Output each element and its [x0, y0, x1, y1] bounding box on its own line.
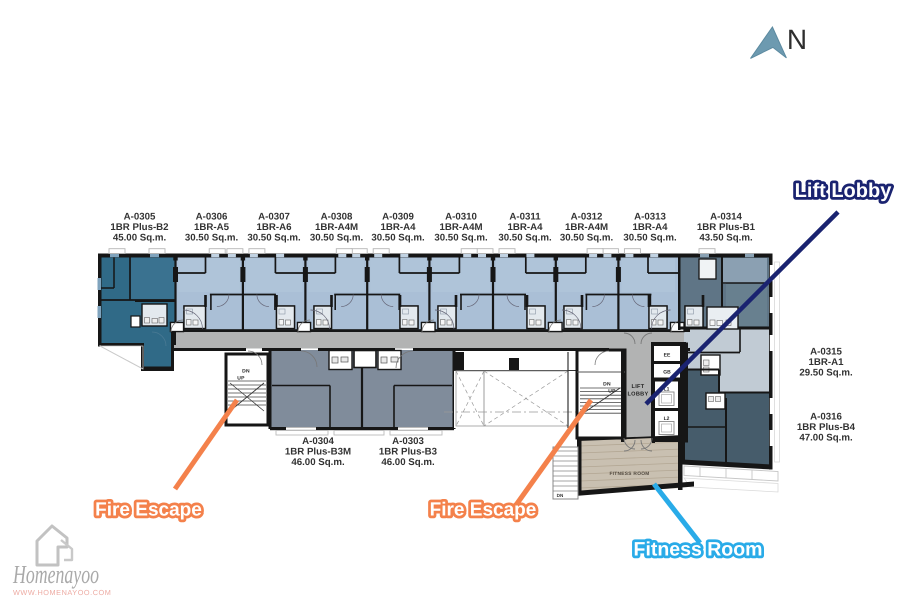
svg-text:UP: UP [237, 376, 245, 382]
svg-text:N: N [787, 24, 807, 55]
svg-text:Fire Escape: Fire Escape [430, 500, 537, 521]
svg-text:LIFT: LIFT [631, 384, 644, 390]
svg-text:WWW.HOMENAYOO.COM: WWW.HOMENAYOO.COM [13, 588, 111, 597]
svg-text:A-03161BR Plus-B447.00 Sq.m.: A-03161BR Plus-B447.00 Sq.m. [797, 412, 856, 444]
svg-text:Fitness Room: Fitness Room [634, 539, 763, 561]
svg-text:A-03111BR-A430.50 Sq.m.: A-03111BR-A430.50 Sq.m. [498, 212, 552, 244]
svg-text:L2: L2 [664, 416, 670, 422]
svg-text:A-03151BR-A129.50 Sq.m.: A-03151BR-A129.50 Sq.m. [799, 347, 853, 379]
svg-text:DN: DN [242, 369, 250, 375]
svg-text:A-03081BR-A4M30.50 Sq.m.: A-03081BR-A4M30.50 Sq.m. [310, 212, 364, 244]
svg-text:A-03061BR-A530.50 Sq.m.: A-03061BR-A530.50 Sq.m. [185, 212, 239, 244]
svg-text:A-03071BR-A630.50 Sq.m.: A-03071BR-A630.50 Sq.m. [247, 212, 301, 244]
svg-text:A-03091BR-A430.50 Sq.m.: A-03091BR-A430.50 Sq.m. [371, 212, 425, 244]
svg-text:UP: UP [608, 389, 616, 395]
svg-text:Homenayoo: Homenayoo [12, 560, 99, 589]
svg-text:A-03121BR-A4M30.50 Sq.m.: A-03121BR-A4M30.50 Sq.m. [560, 212, 614, 244]
svg-text:A-03051BR Plus-B245.00 Sq.m.: A-03051BR Plus-B245.00 Sq.m. [110, 212, 168, 244]
svg-text:A-03131BR-A430.50 Sq.m.: A-03131BR-A430.50 Sq.m. [623, 212, 677, 244]
svg-text:LOBBY: LOBBY [627, 392, 648, 398]
svg-text:FITNESS ROOM: FITNESS ROOM [609, 471, 649, 477]
svg-text:Lift Lobby: Lift Lobby [795, 180, 893, 202]
svg-text:A-03031BR Plus-B346.00 Sq.m.: A-03031BR Plus-B346.00 Sq.m. [379, 436, 438, 468]
svg-text:DN: DN [603, 382, 611, 388]
svg-text:Fire Escape: Fire Escape [95, 500, 202, 521]
svg-text:DN: DN [557, 493, 564, 498]
svg-text:EE: EE [664, 353, 671, 359]
svg-text:A-03041BR Plus-B3M46.00 Sq.m.: A-03041BR Plus-B3M46.00 Sq.m. [285, 436, 351, 468]
svg-text:A-03101BR-A4M30.50 Sq.m.: A-03101BR-A4M30.50 Sq.m. [434, 212, 488, 244]
svg-text:A-03141BR Plus-B143.50 Sq.m.: A-03141BR Plus-B143.50 Sq.m. [697, 212, 756, 244]
svg-text:GB: GB [663, 370, 671, 376]
